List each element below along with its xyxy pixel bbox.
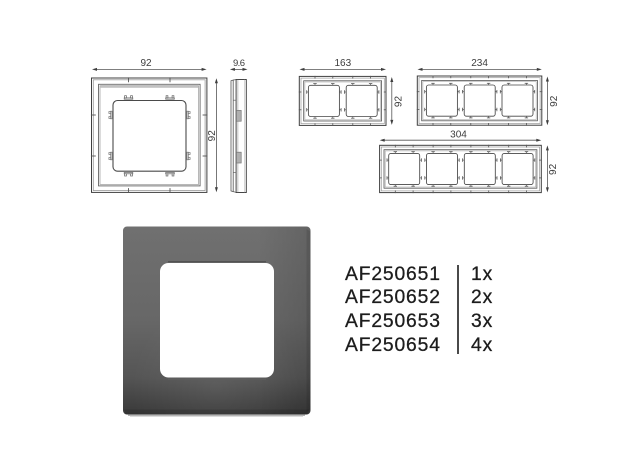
svg-text:304: 304: [450, 130, 467, 141]
svg-text:92: 92: [393, 96, 404, 108]
svg-text:92: 92: [548, 163, 559, 175]
svg-text:92: 92: [207, 130, 218, 142]
svg-text:92: 92: [549, 95, 560, 107]
svg-text:163: 163: [334, 58, 351, 69]
svg-text:9.6: 9.6: [233, 58, 245, 69]
svg-text:92: 92: [140, 58, 152, 69]
svg-text:234: 234: [471, 58, 488, 69]
